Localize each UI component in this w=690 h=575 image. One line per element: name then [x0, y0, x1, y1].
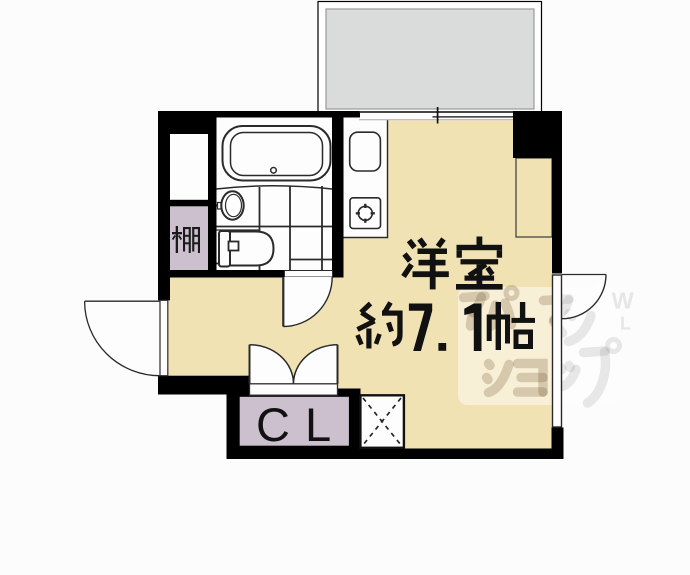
svg-text:W: W — [612, 288, 635, 314]
svg-text:L: L — [620, 314, 631, 334]
svg-text:CL: CL — [256, 398, 346, 451]
